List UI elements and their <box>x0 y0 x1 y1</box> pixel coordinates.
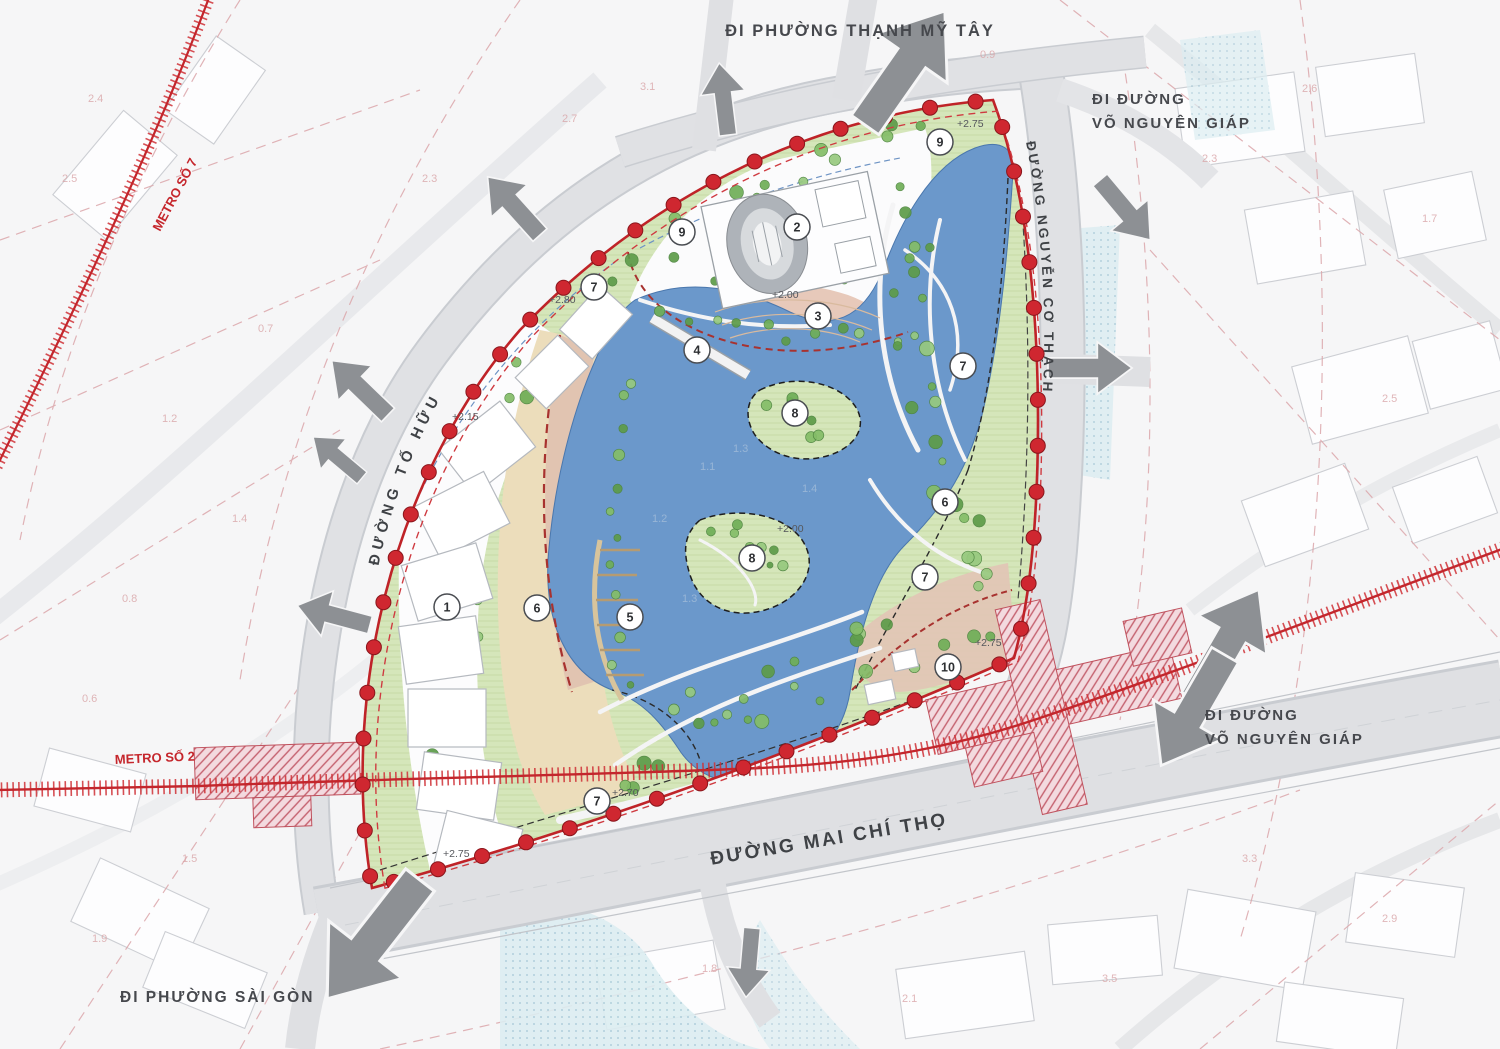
zone-marker: 10 <box>935 654 961 680</box>
tree-icon <box>816 697 824 705</box>
boundary-dot <box>357 823 372 838</box>
elevation-label: +2.75 <box>975 637 1002 649</box>
zone-marker: 7 <box>912 564 938 590</box>
boundary-dot <box>355 777 370 792</box>
tree-icon <box>850 622 863 635</box>
svg-text:4: 4 <box>694 344 701 358</box>
zone-marker: 7 <box>584 788 610 814</box>
tree-icon <box>882 131 893 142</box>
svg-text:7: 7 <box>594 795 601 809</box>
boundary-dot <box>1016 209 1031 224</box>
spot-number: 1.5 <box>182 853 197 865</box>
label-metro-so-2: METRO SỐ 2 <box>114 749 195 767</box>
spot-number: 2.4 <box>88 93 103 105</box>
tree-icon <box>613 449 624 460</box>
tree-icon <box>906 401 918 413</box>
boundary-dot <box>1022 255 1037 270</box>
spot-number: 2.5 <box>1382 393 1397 405</box>
tree-icon <box>614 534 621 541</box>
tree-icon <box>909 267 920 278</box>
label-di-phuong-thanh-my-tay: ĐI PHƯỜNG THẠNH MỸ TÂY <box>725 20 995 40</box>
spot-number: 1.2 <box>162 413 177 425</box>
tree-icon <box>760 180 769 189</box>
lake-number: 1.3 <box>682 593 697 605</box>
boundary-dot <box>360 685 375 700</box>
elevation-label: +2.00 <box>777 523 804 535</box>
tree-icon <box>723 710 732 719</box>
boundary-dot <box>431 862 446 877</box>
tree-icon <box>981 568 992 579</box>
tree-icon <box>615 632 626 643</box>
tree-icon <box>928 383 936 391</box>
tree-icon <box>505 393 515 403</box>
zone-marker: 8 <box>739 545 765 571</box>
boundary-dot <box>706 174 721 189</box>
boundary-dot <box>388 550 403 565</box>
boundary-dot <box>1026 530 1041 545</box>
boundary-dot <box>421 465 436 480</box>
zone-marker: 2 <box>784 214 810 240</box>
map-canvas: ĐI PHƯỜNG THẠNH MỸ TÂY ĐI ĐƯỜNG VÕ NGUYÊ… <box>0 0 1500 1049</box>
svg-text:9: 9 <box>679 226 686 240</box>
label-di-duong-vng-right-1: ĐI ĐƯỜNG <box>1205 706 1299 724</box>
spot-number: 1.4 <box>232 513 247 525</box>
boundary-dot <box>628 223 643 238</box>
spot-number: 3.1 <box>640 81 655 93</box>
spot-number: 0.6 <box>82 693 97 705</box>
tree-icon <box>611 590 620 599</box>
tree-icon <box>761 400 772 411</box>
zone-marker: 7 <box>581 274 607 300</box>
tree-icon <box>755 714 769 728</box>
tree-icon <box>815 143 828 156</box>
zone-marker: 9 <box>669 219 695 245</box>
elevation-label: +2.80 <box>549 294 576 306</box>
tree-icon <box>790 682 798 690</box>
boundary-dot <box>403 507 418 522</box>
svg-text:3: 3 <box>815 310 822 324</box>
boundary-dot <box>356 731 371 746</box>
tree-icon <box>859 664 873 678</box>
label-di-duong-vng-top-1: ĐI ĐƯỜNG <box>1092 90 1186 108</box>
tree-icon <box>607 660 616 669</box>
boundary-dot <box>1026 300 1041 315</box>
tree-icon <box>939 458 946 465</box>
boundary-dot <box>865 710 880 725</box>
boundary-dot <box>442 424 457 439</box>
tree-icon <box>911 332 919 340</box>
elevation-label: +2.15 <box>452 411 479 423</box>
zone-marker: 8 <box>782 400 808 426</box>
metro-line-7 <box>0 0 210 470</box>
boundary-dot <box>907 693 922 708</box>
spot-number: 2.6 <box>1302 83 1317 95</box>
tree-icon <box>813 430 824 441</box>
tree-icon <box>881 619 892 630</box>
boundary-dot <box>1014 621 1029 636</box>
svg-text:5: 5 <box>627 611 634 625</box>
masterplan-map: ĐI PHƯỜNG THẠNH MỸ TÂY ĐI ĐƯỜNG VÕ NGUYÊ… <box>0 0 1500 1049</box>
spot-number: 0.9 <box>980 49 995 61</box>
svg-text:10: 10 <box>941 661 955 675</box>
tree-icon <box>711 719 718 726</box>
tree-icon <box>838 323 848 333</box>
spot-number: 3.5 <box>1102 973 1117 985</box>
svg-text:7: 7 <box>960 360 967 374</box>
boundary-dot <box>1029 484 1044 499</box>
svg-text:8: 8 <box>749 552 756 566</box>
boundary-dot <box>1007 164 1022 179</box>
spot-number: 3.3 <box>1242 853 1257 865</box>
zone-marker: 5 <box>617 604 643 630</box>
tree-icon <box>930 396 941 407</box>
tree-icon <box>926 243 935 252</box>
boundary-dot <box>466 384 481 399</box>
tree-icon <box>627 682 634 689</box>
boundary-dot <box>475 849 490 864</box>
tree-icon <box>938 639 949 650</box>
svg-text:2: 2 <box>794 221 801 235</box>
tree-icon <box>613 484 622 493</box>
boundary-dot <box>376 595 391 610</box>
svg-text:8: 8 <box>792 407 799 421</box>
lake-number: 1.1 <box>700 461 715 473</box>
label-di-duong-vng-top-2: VÕ NGUYÊN GIÁP <box>1092 114 1251 132</box>
tree-icon <box>807 416 816 425</box>
boundary-dot <box>747 154 762 169</box>
svg-text:6: 6 <box>534 602 541 616</box>
tree-icon <box>778 561 788 571</box>
tree-icon <box>730 186 744 200</box>
tree-icon <box>744 716 752 724</box>
boundary-dot <box>1030 438 1045 453</box>
tree-icon <box>764 320 774 330</box>
tree-icon <box>685 687 695 697</box>
spot-number: 2.1 <box>902 993 917 1005</box>
boundary-dot <box>363 869 378 884</box>
boundary-dot <box>779 744 794 759</box>
tree-icon <box>714 316 722 324</box>
boundary-dot <box>591 251 606 266</box>
svg-text:6: 6 <box>942 496 949 510</box>
boundary-dot <box>995 120 1010 135</box>
spot-number: 2.3 <box>1202 153 1217 165</box>
boundary-dot <box>693 776 708 791</box>
zone-marker: 7 <box>950 353 976 379</box>
tree-icon <box>669 252 679 262</box>
spot-number: 0.8 <box>122 593 137 605</box>
zone-marker: 6 <box>932 489 958 515</box>
tree-icon <box>739 694 748 703</box>
tree-icon <box>974 581 984 591</box>
tree-icon <box>929 435 943 449</box>
tree-icon <box>654 306 664 316</box>
svg-text:1: 1 <box>444 601 451 615</box>
tree-icon <box>973 515 985 527</box>
lake-number: 1.2 <box>652 513 667 525</box>
tree-icon <box>919 294 927 302</box>
boundary-dot <box>366 640 381 655</box>
elevation-label: +2.75 <box>443 848 470 860</box>
tree-icon <box>694 718 705 729</box>
tree-icon <box>619 424 628 433</box>
spot-number: 2.5 <box>62 173 77 185</box>
boundary-dot <box>822 727 837 742</box>
tree-icon <box>730 529 739 538</box>
boundary-dot <box>666 197 681 212</box>
boundary-dot <box>790 136 805 151</box>
zone-marker: 6 <box>524 595 550 621</box>
spot-number: 0.7 <box>258 323 273 335</box>
tree-icon <box>790 657 799 666</box>
lake-number: 1.4 <box>802 483 817 495</box>
tree-icon <box>608 277 617 286</box>
label-di-phuong-sai-gon: ĐI PHƯỜNG SÀI GÒN <box>120 988 314 1006</box>
tree-icon <box>905 254 914 263</box>
boundary-dot <box>649 791 664 806</box>
zone-marker: 3 <box>805 303 831 329</box>
boundary-dot <box>992 657 1007 672</box>
tree-icon <box>782 337 791 346</box>
label-di-duong-vng-right-2: VÕ NGUYÊN GIÁP <box>1205 730 1364 748</box>
spot-number: 2.7 <box>562 113 577 125</box>
spot-number: 1.7 <box>1422 213 1437 225</box>
spot-number: 1.8 <box>702 963 717 975</box>
spot-number: 1.9 <box>92 933 107 945</box>
tree-icon <box>732 319 741 328</box>
boundary-dot <box>833 121 848 136</box>
tree-icon <box>706 527 715 536</box>
svg-text:7: 7 <box>591 281 598 295</box>
svg-text:9: 9 <box>937 136 944 150</box>
tree-icon <box>854 328 864 338</box>
tree-icon <box>893 342 902 351</box>
tree-icon <box>900 207 912 219</box>
zone-marker: 9 <box>927 129 953 155</box>
tree-icon <box>810 329 820 339</box>
elevation-label: +2.00 <box>772 289 799 301</box>
boundary-dot <box>562 821 577 836</box>
tree-icon <box>916 121 925 130</box>
boundary-dot <box>736 760 751 775</box>
boundary-dot <box>1030 392 1045 407</box>
tree-icon <box>909 242 920 253</box>
spot-number: 2.3 <box>422 173 437 185</box>
boundary-dot <box>1021 576 1036 591</box>
tree-icon <box>890 289 899 298</box>
tree-icon <box>962 551 974 563</box>
tree-icon <box>626 379 635 388</box>
tree-icon <box>829 154 840 165</box>
tree-icon <box>668 704 679 715</box>
boundary-dot <box>493 347 508 362</box>
elevation-label: +2.75 <box>957 118 984 130</box>
tree-icon <box>625 254 638 267</box>
boundary-dot <box>923 100 938 115</box>
tree-icon <box>770 546 779 555</box>
boundary-dot <box>519 835 534 850</box>
boundary-dot <box>968 94 983 109</box>
tree-icon <box>762 665 775 678</box>
zone-marker: 1 <box>434 594 460 620</box>
tree-icon <box>606 561 614 569</box>
zone-marker: 4 <box>684 337 710 363</box>
tree-icon <box>685 318 693 326</box>
tree-icon <box>920 341 935 356</box>
tree-icon <box>960 513 969 522</box>
lake-number: 1.3 <box>733 443 748 455</box>
elevation-label: +2.70 <box>612 787 639 799</box>
tree-icon <box>619 391 628 400</box>
tree-icon <box>732 520 742 530</box>
boundary-dot <box>523 312 538 327</box>
svg-text:7: 7 <box>922 571 929 585</box>
tree-icon <box>896 183 904 191</box>
spot-number: 2.9 <box>1382 913 1397 925</box>
tree-icon <box>767 562 773 568</box>
tree-icon <box>606 508 614 516</box>
